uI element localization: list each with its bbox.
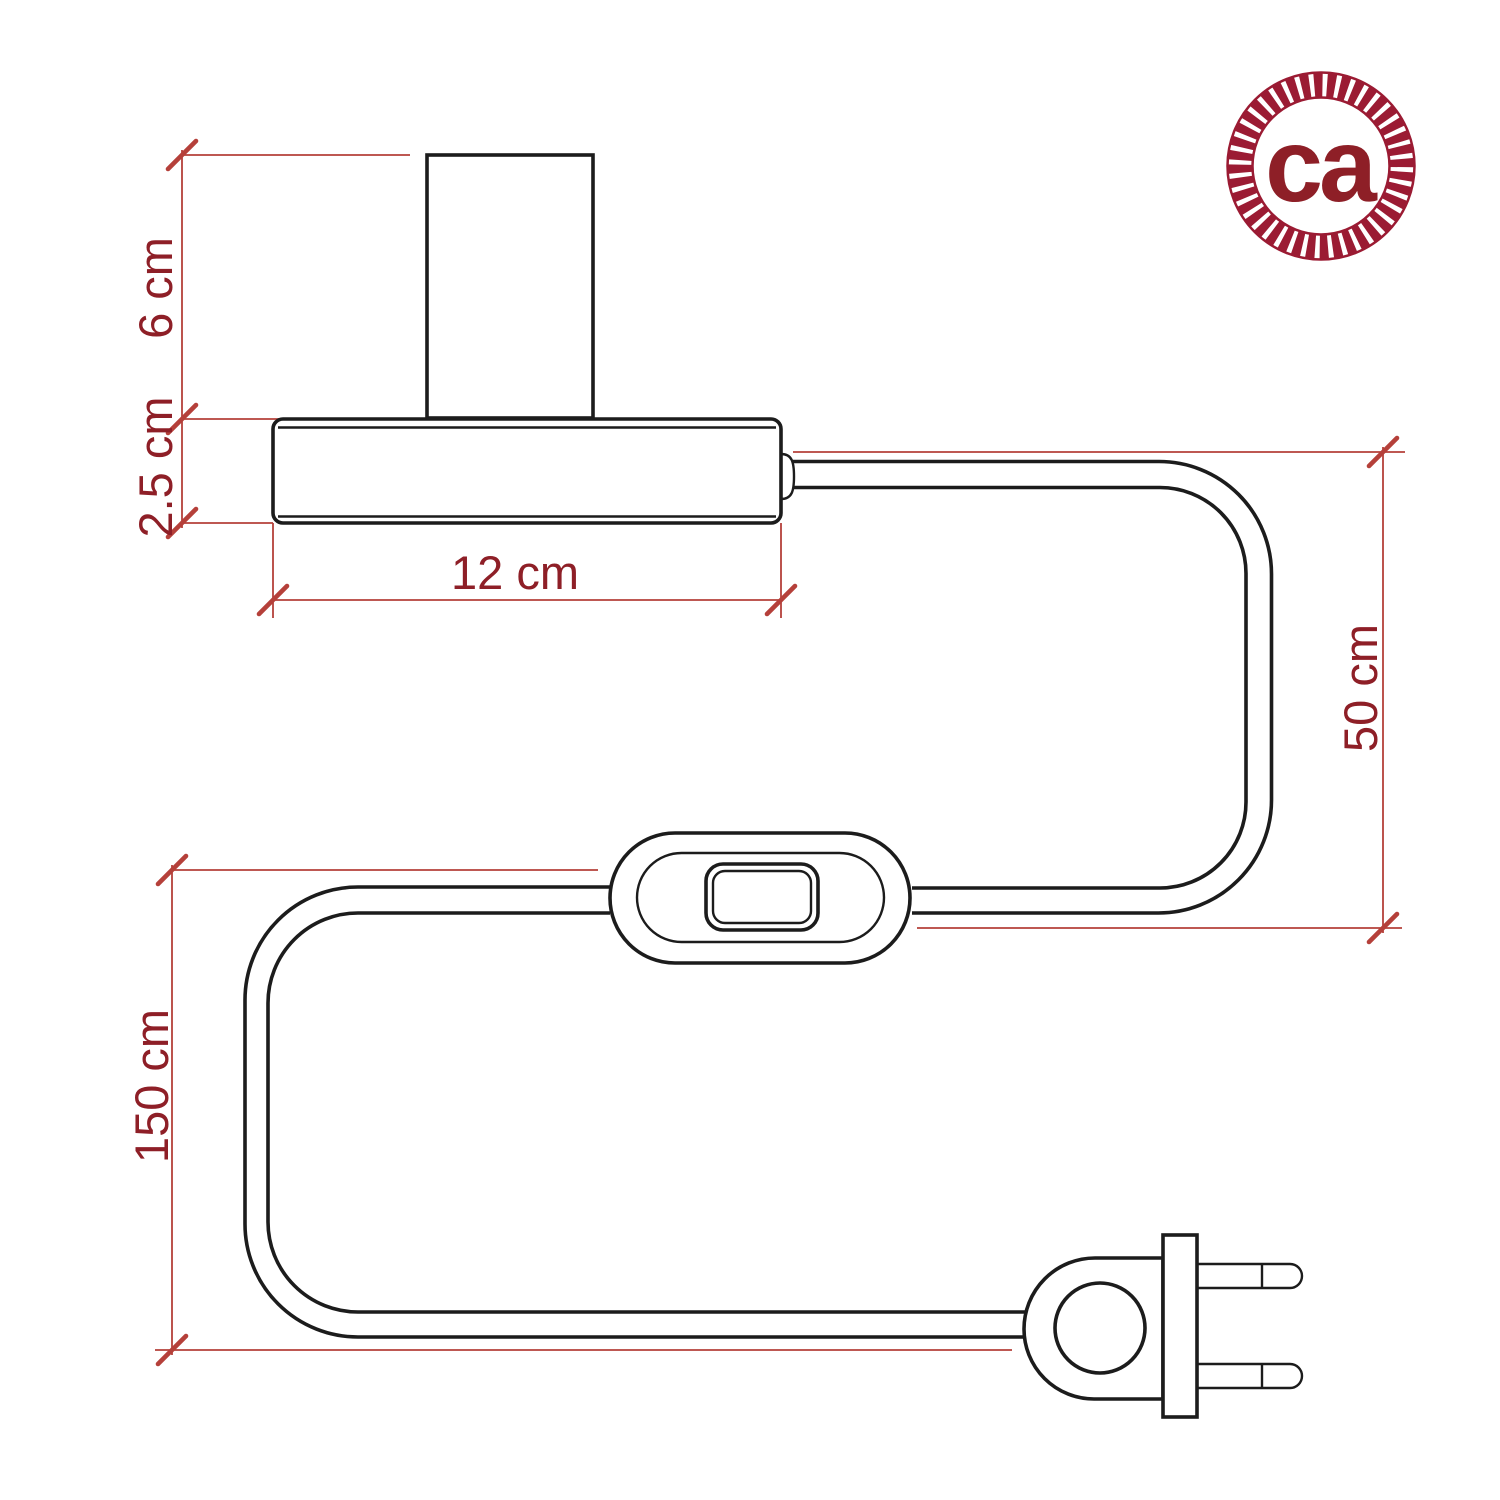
- lamp-drawing: [245, 155, 1302, 1417]
- dimension-label-base-width: 12 cm: [451, 546, 579, 599]
- lamp-holder-outline: [427, 155, 593, 418]
- logo-text: ca: [1265, 108, 1378, 224]
- cable-outer-line: [245, 887, 1026, 1337]
- dimension-label-cable-socket-to-switch: 50 cm: [1334, 624, 1387, 752]
- base-outline: [273, 419, 781, 523]
- plug-face-plate: [1163, 1235, 1197, 1417]
- plug-screw-circle: [1055, 1283, 1145, 1373]
- power-cable-lower: [245, 887, 1026, 1337]
- diagram-svg: 6 cm 2.5 cm 12 cm 50 cm 150 cm ca: [0, 0, 1500, 1500]
- dimension-label-base-height: 2.5 cm: [129, 396, 182, 537]
- dimension-label-cable-overall: 150 cm: [125, 1009, 178, 1163]
- lamp-base: [273, 419, 794, 523]
- brand-logo: ca: [1223, 68, 1419, 264]
- inline-switch: [610, 833, 910, 963]
- plug-prong-bottom: [1197, 1364, 1302, 1388]
- two-prong-plug: [1024, 1235, 1302, 1417]
- switch-button: [706, 864, 818, 930]
- dimension-lines: [155, 141, 1405, 1364]
- cable-inner-line: [793, 488, 1246, 889]
- dimension-label-socket-height: 6 cm: [129, 237, 182, 339]
- cable-exit-grommet: [781, 454, 794, 499]
- product-dimension-diagram: 6 cm 2.5 cm 12 cm 50 cm 150 cm ca: [0, 0, 1500, 1500]
- dimension-labels: 6 cm 2.5 cm 12 cm 50 cm 150 cm: [125, 237, 1387, 1163]
- plug-prong-top: [1197, 1264, 1302, 1288]
- cable-inner-line: [268, 913, 1026, 1312]
